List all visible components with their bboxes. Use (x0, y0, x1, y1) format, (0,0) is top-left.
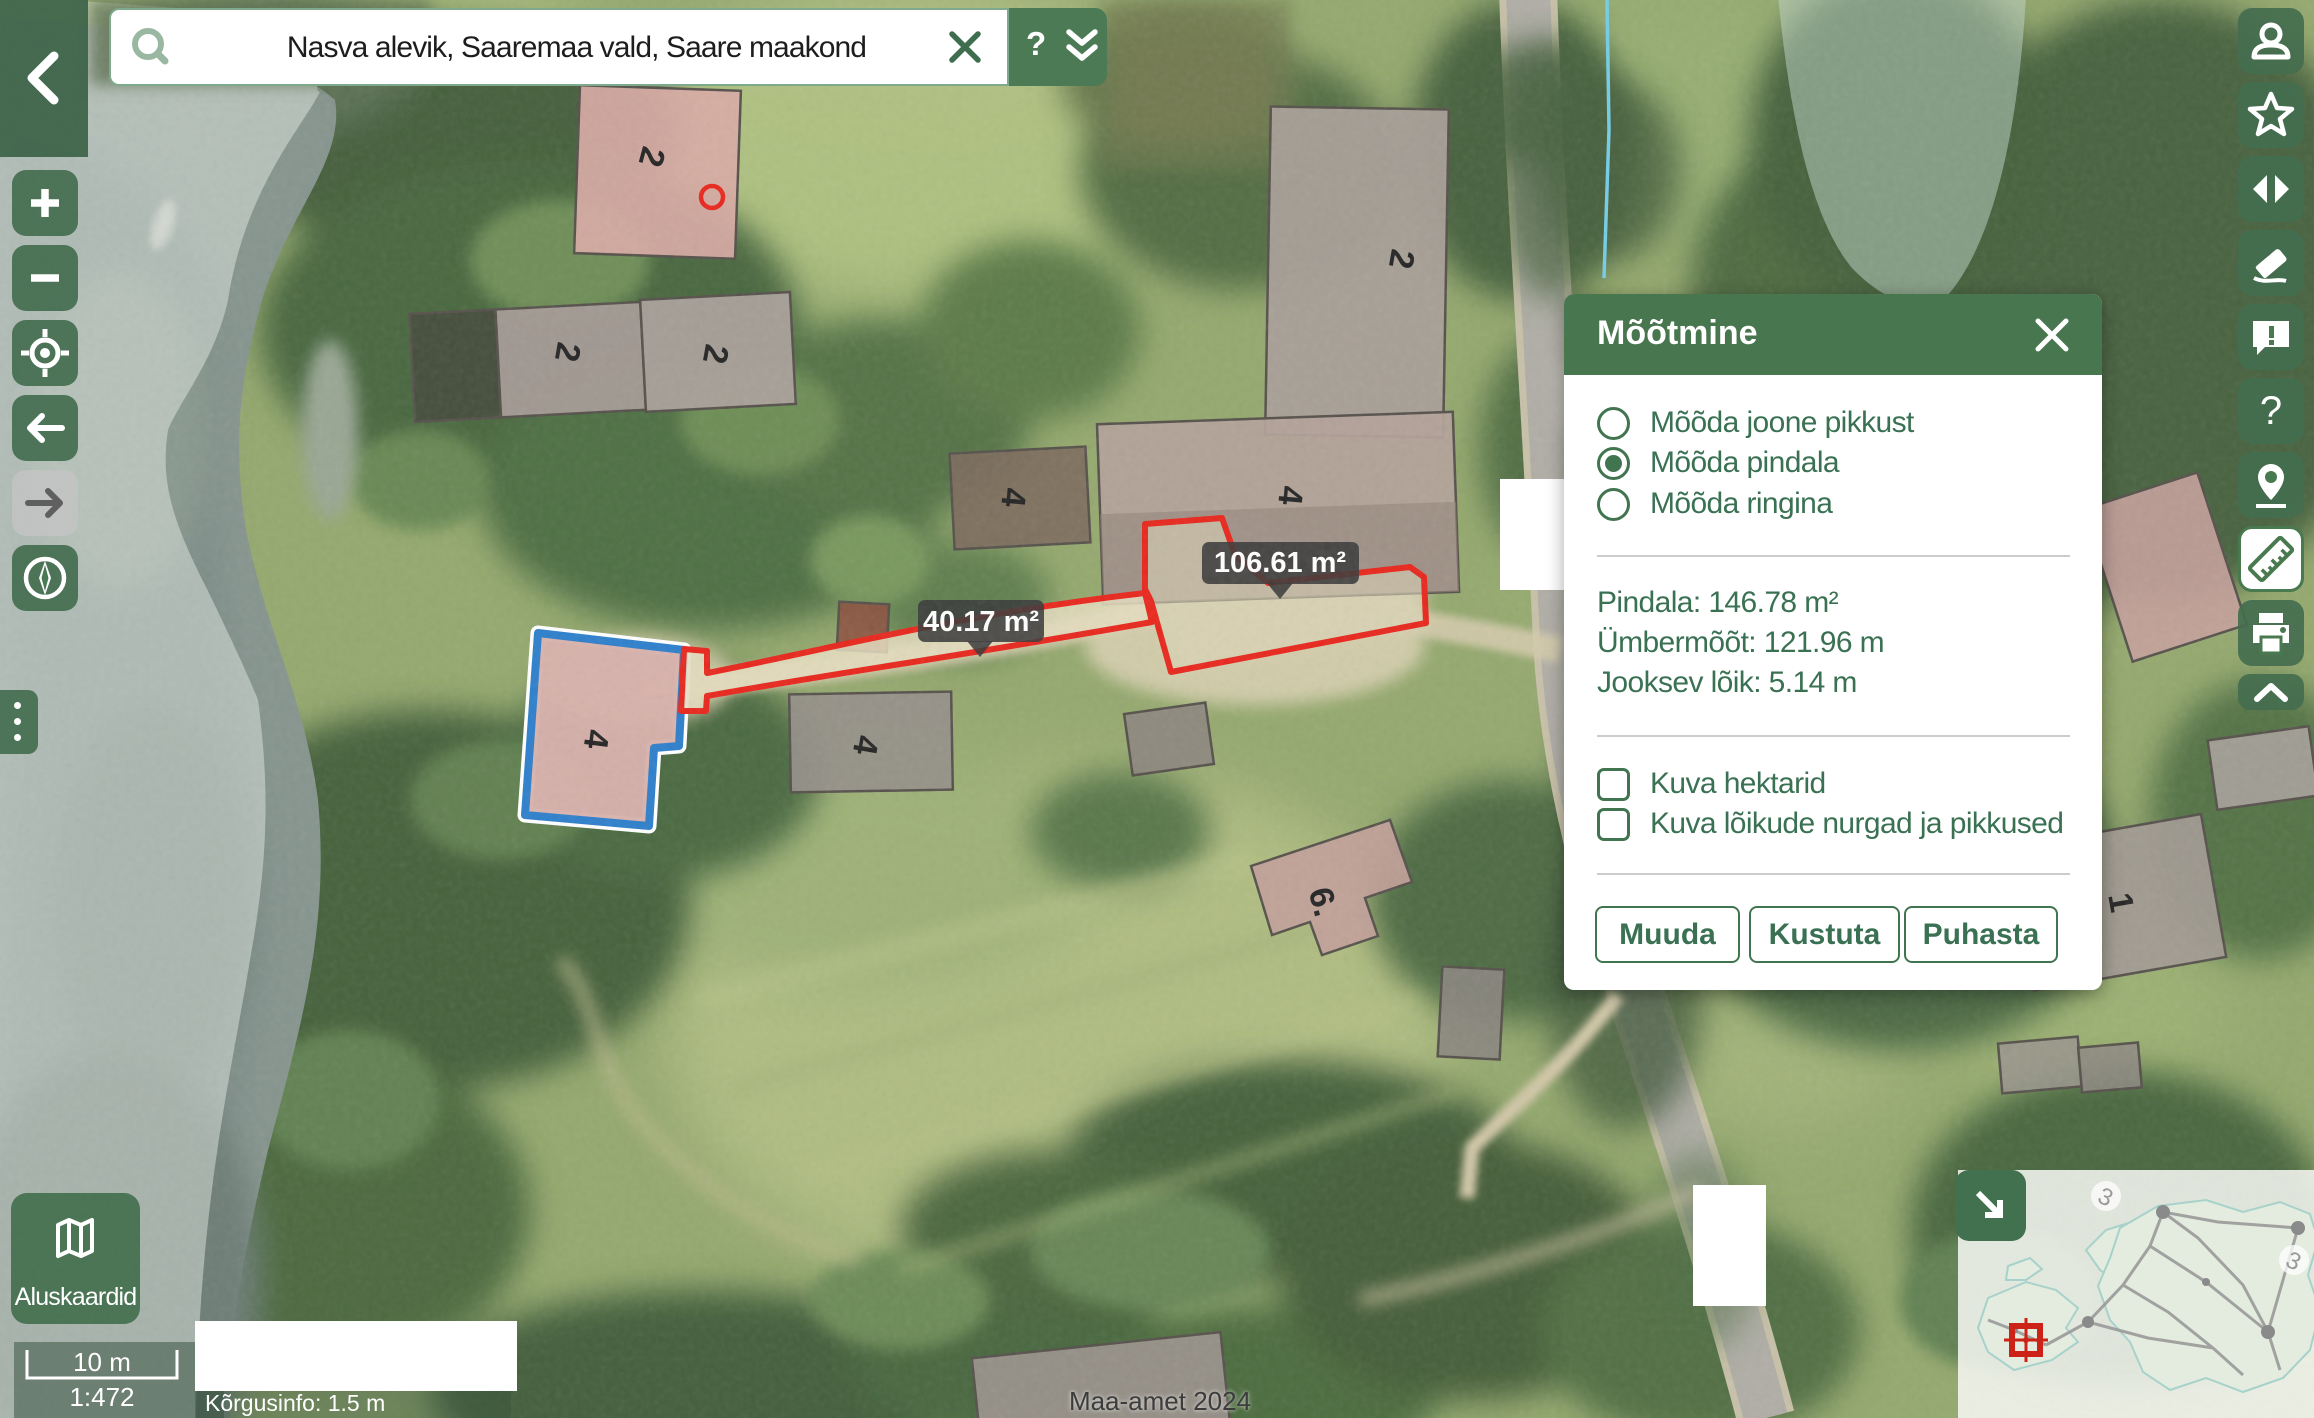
svg-text:1:472: 1:472 (69, 1382, 134, 1412)
svg-text:10 m: 10 m (73, 1347, 131, 1377)
